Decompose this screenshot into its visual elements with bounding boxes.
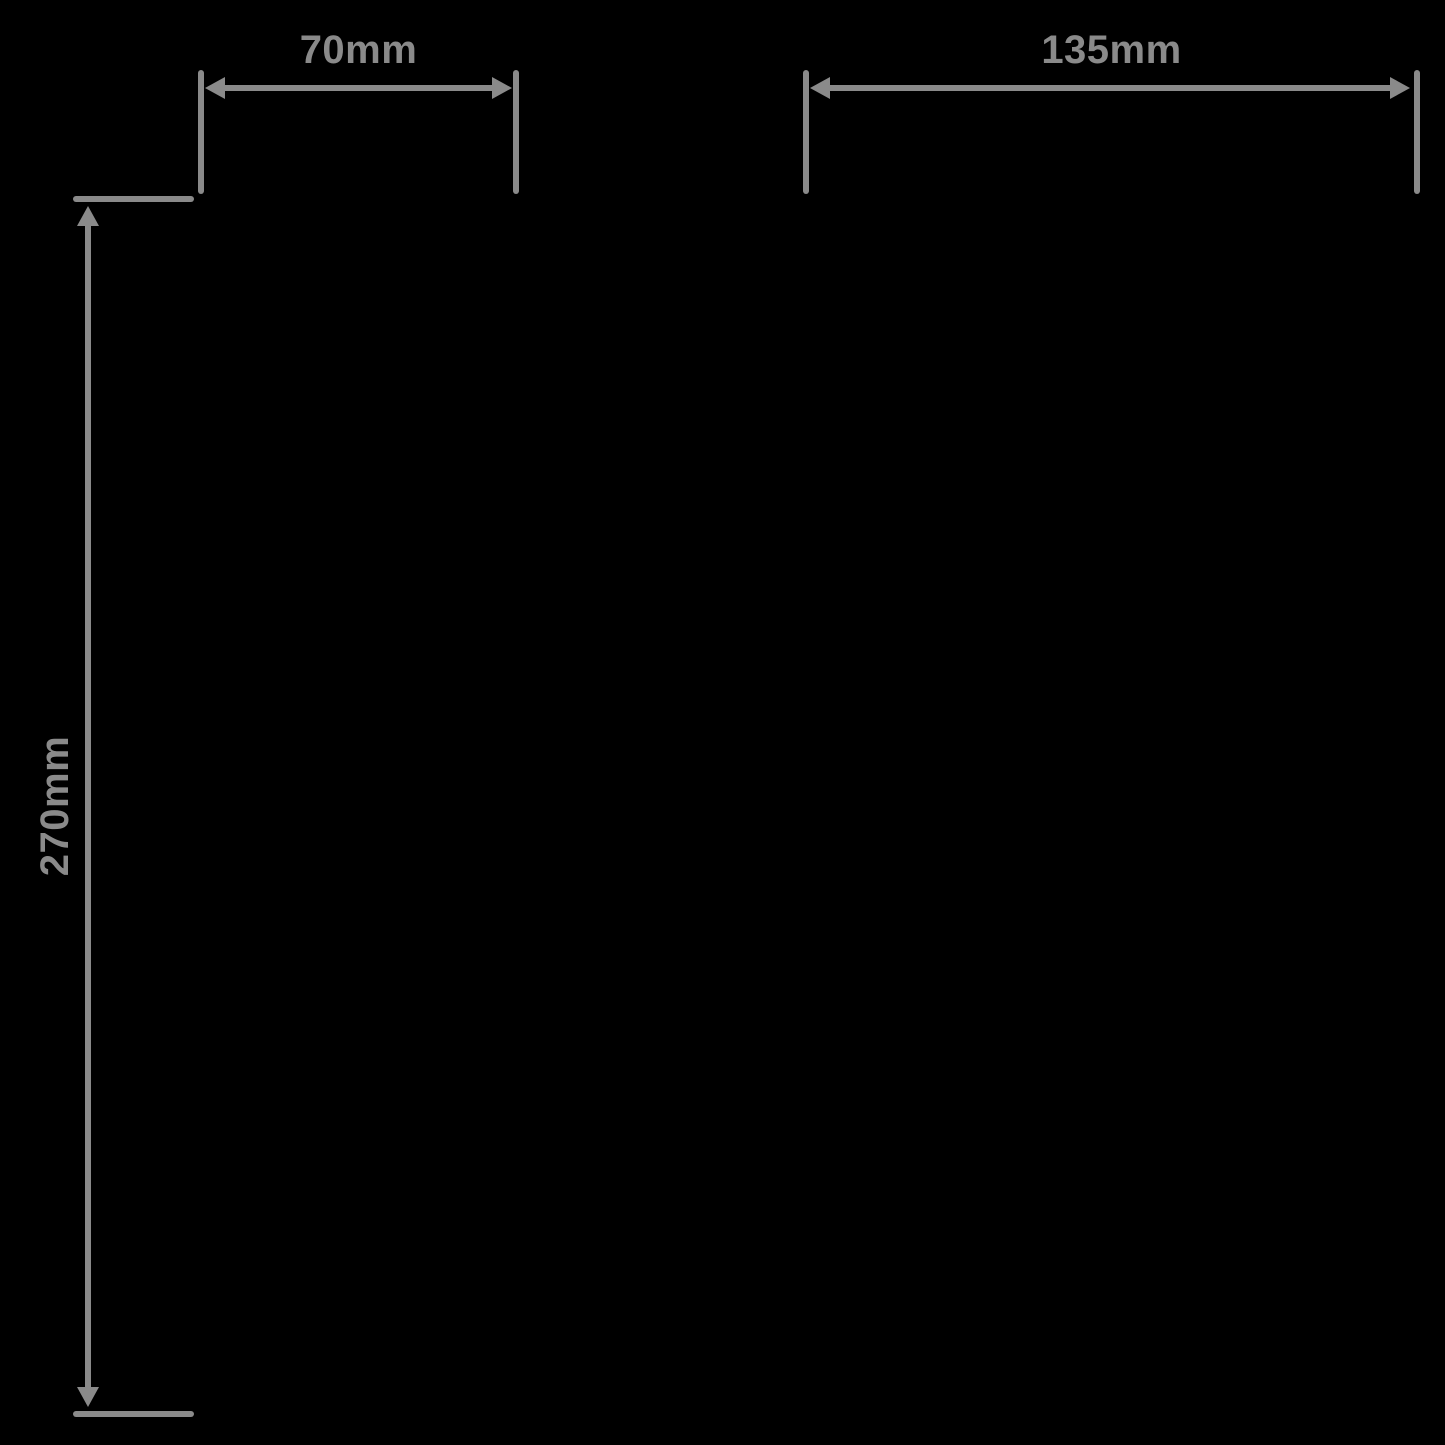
arrow-up-icon [77, 206, 99, 226]
extension-line-top [73, 196, 194, 202]
arrow-left-icon [810, 77, 830, 99]
dimension-label: 270mm [33, 686, 77, 926]
dimension-diagram: 70mm 135mm 270mm [0, 0, 1445, 1445]
extension-line-bottom [73, 1411, 194, 1417]
dimension-label: 135mm [803, 28, 1420, 73]
arrow-right-icon [1390, 77, 1410, 99]
extension-tick-left [198, 70, 204, 194]
arrow-left-icon [205, 77, 225, 99]
arrow-right-icon [492, 77, 512, 99]
dimension-label: 70mm [198, 28, 519, 73]
dimension-line [85, 220, 91, 1392]
extension-tick-right [513, 70, 519, 194]
dimension-line [824, 85, 1396, 91]
extension-tick-right [1414, 70, 1420, 194]
extension-tick-left [803, 70, 809, 194]
dimension-line [218, 85, 498, 91]
arrow-down-icon [77, 1387, 99, 1407]
